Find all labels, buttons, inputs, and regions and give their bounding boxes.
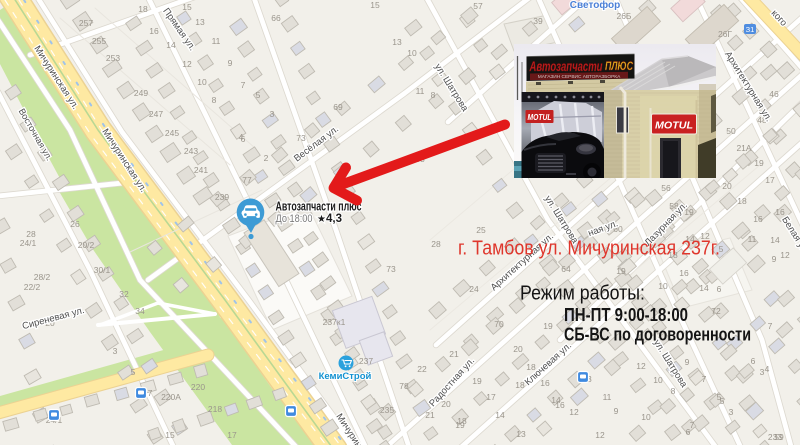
svg-text:16: 16: [540, 378, 550, 388]
svg-text:8: 8: [431, 90, 436, 100]
svg-text:13: 13: [195, 17, 205, 27]
svg-text:5: 5: [717, 392, 722, 402]
svg-text:32: 32: [119, 289, 129, 299]
svg-text:235: 235: [380, 405, 394, 415]
svg-text:56: 56: [661, 183, 671, 193]
svg-text:253: 253: [106, 53, 120, 63]
svg-text:14: 14: [551, 395, 561, 405]
svg-text:77: 77: [242, 175, 252, 185]
svg-text:10: 10: [641, 412, 651, 422]
svg-text:7: 7: [148, 388, 153, 398]
svg-text:21: 21: [425, 410, 435, 420]
svg-text:26: 26: [70, 219, 80, 229]
svg-text:3: 3: [729, 407, 734, 417]
svg-text:26Б: 26Б: [616, 11, 631, 21]
svg-text:14: 14: [495, 410, 505, 420]
svg-text:73: 73: [386, 264, 396, 274]
svg-text:6: 6: [751, 356, 756, 366]
svg-text:MOTUL: MOTUL: [655, 121, 693, 132]
svg-text:9: 9: [685, 357, 690, 367]
svg-text:7: 7: [690, 420, 695, 430]
svg-text:13: 13: [392, 37, 402, 47]
svg-text:220: 220: [191, 382, 205, 392]
svg-text:6: 6: [717, 284, 722, 294]
svg-text:СБ-ВС по договоренности: СБ-ВС по договоренности: [564, 325, 751, 345]
svg-text:18: 18: [737, 196, 747, 206]
svg-text:15: 15: [165, 430, 175, 440]
svg-text:г. Тамбов ул. Мичуринская 237г: г. Тамбов ул. Мичуринская 237г.: [458, 238, 720, 260]
svg-text:3: 3: [113, 346, 118, 356]
svg-text:2: 2: [264, 153, 269, 163]
svg-text:9: 9: [614, 406, 619, 416]
svg-text:Автозапчасти: Автозапчасти: [529, 59, 603, 74]
svg-text:22: 22: [417, 364, 427, 374]
svg-text:20: 20: [513, 344, 523, 354]
svg-text:257: 257: [79, 18, 93, 28]
svg-text:Светофор: Светофор: [570, 0, 620, 11]
svg-text:25: 25: [476, 225, 486, 235]
svg-text:12: 12: [780, 250, 790, 260]
svg-text:До 18:00: До 18:00: [276, 213, 313, 225]
svg-text:247: 247: [149, 109, 163, 119]
svg-text:218: 218: [208, 404, 222, 414]
svg-text:73: 73: [296, 133, 306, 143]
svg-text:МАГАЗИН СЕРВИС АВТОРАЗБОРКА: МАГАЗИН СЕРВИС АВТОРАЗБОРКА: [538, 74, 621, 80]
svg-text:16: 16: [753, 214, 763, 224]
svg-text:70: 70: [494, 319, 504, 329]
svg-text:9: 9: [772, 254, 777, 264]
svg-text:13: 13: [516, 429, 526, 439]
svg-text:220A: 220A: [161, 392, 181, 402]
svg-text:7: 7: [241, 80, 246, 90]
svg-text:18: 18: [457, 416, 467, 426]
svg-text:12: 12: [182, 59, 192, 69]
svg-text:16: 16: [149, 26, 159, 36]
svg-text:24/1: 24/1: [20, 238, 37, 248]
svg-text:11: 11: [748, 234, 757, 244]
svg-text:17: 17: [486, 392, 496, 402]
svg-text:16: 16: [775, 207, 785, 217]
svg-text:26Г: 26Г: [718, 29, 732, 39]
svg-text:3: 3: [270, 109, 275, 119]
svg-text:ПЛЮС: ПЛЮС: [605, 61, 634, 73]
svg-text:8: 8: [212, 95, 217, 105]
svg-text:15: 15: [370, 0, 380, 10]
svg-text:243: 243: [184, 146, 198, 156]
svg-text:4: 4: [765, 364, 770, 374]
svg-text:57: 57: [473, 1, 483, 11]
svg-text:24: 24: [469, 284, 479, 294]
svg-text:9: 9: [228, 58, 233, 68]
svg-text:12: 12: [595, 430, 605, 440]
svg-text:З1: З1: [746, 25, 755, 34]
svg-text:7: 7: [768, 321, 773, 331]
svg-text:★: ★: [317, 214, 326, 225]
svg-text:50: 50: [726, 126, 736, 136]
svg-text:10: 10: [407, 48, 417, 58]
svg-text:11: 11: [603, 392, 612, 402]
svg-text:10: 10: [653, 375, 663, 385]
svg-text:12: 12: [569, 407, 579, 417]
svg-text:237к1: 237к1: [323, 317, 346, 327]
svg-text:5: 5: [131, 367, 136, 377]
svg-text:69: 69: [333, 102, 343, 112]
svg-text:21А: 21А: [736, 143, 751, 153]
svg-text:239: 239: [215, 192, 229, 202]
svg-text:34: 34: [135, 306, 145, 316]
svg-text:14: 14: [166, 40, 176, 50]
svg-text:14: 14: [699, 283, 709, 293]
svg-text:19: 19: [616, 266, 626, 276]
svg-text:245: 245: [165, 128, 179, 138]
svg-text:46: 46: [769, 89, 779, 99]
svg-text:66: 66: [271, 13, 281, 23]
svg-text:28/2: 28/2: [34, 272, 51, 282]
svg-text:22/2: 22/2: [24, 282, 41, 292]
svg-text:MOTUL: MOTUL: [528, 113, 552, 122]
svg-text:10: 10: [197, 77, 207, 87]
svg-text:28: 28: [26, 229, 36, 239]
svg-text:28: 28: [431, 239, 441, 249]
svg-text:15: 15: [182, 2, 192, 12]
svg-text:59: 59: [774, 432, 784, 442]
svg-text:11: 11: [416, 86, 425, 96]
svg-text:Режим работы:: Режим работы:: [520, 283, 645, 305]
svg-text:19: 19: [543, 321, 553, 331]
svg-text:78: 78: [399, 381, 409, 391]
svg-text:8: 8: [671, 386, 676, 396]
svg-text:237: 237: [359, 356, 373, 366]
svg-text:12: 12: [636, 361, 646, 371]
svg-text:64: 64: [561, 264, 571, 274]
svg-text:241: 241: [194, 165, 208, 175]
svg-text:7: 7: [702, 374, 707, 384]
svg-text:5: 5: [256, 90, 261, 100]
svg-text:16: 16: [679, 268, 689, 278]
svg-text:17: 17: [765, 175, 775, 185]
svg-text:39: 39: [533, 16, 543, 26]
svg-text:ПН-ПТ 9:00-18:00: ПН-ПТ 9:00-18:00: [564, 305, 688, 325]
svg-text:72: 72: [711, 306, 721, 316]
svg-text:17: 17: [227, 430, 237, 440]
svg-text:КемиСтрой: КемиСтрой: [319, 371, 372, 382]
svg-text:30/1: 30/1: [94, 265, 111, 275]
svg-text:6: 6: [686, 427, 691, 437]
svg-text:19: 19: [472, 376, 482, 386]
svg-text:20: 20: [722, 181, 732, 191]
svg-text:11: 11: [212, 36, 221, 46]
svg-text:18: 18: [138, 4, 148, 14]
svg-text:14: 14: [770, 235, 780, 245]
svg-text:4: 4: [239, 132, 244, 142]
svg-text:249: 249: [134, 88, 148, 98]
svg-text:20/2: 20/2: [78, 240, 95, 250]
svg-text:10: 10: [658, 281, 668, 291]
svg-text:255: 255: [92, 36, 106, 46]
svg-text:19: 19: [754, 158, 764, 168]
svg-text:21: 21: [449, 349, 459, 359]
svg-text:4,3: 4,3: [326, 213, 342, 225]
